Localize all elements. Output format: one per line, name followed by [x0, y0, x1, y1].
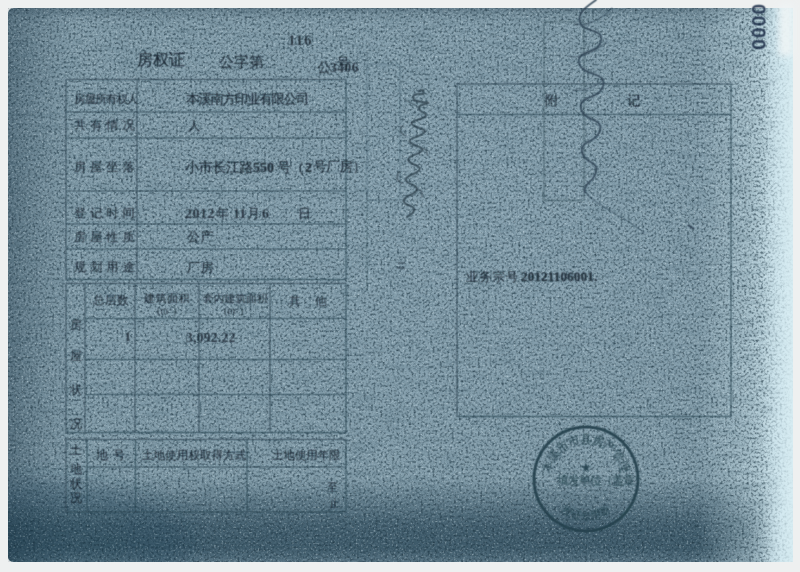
svg-text:11: 11 [233, 207, 246, 222]
svg-text:6: 6 [262, 207, 269, 222]
svg-text:0000: 0000 [747, 4, 768, 51]
svg-text:116: 116 [288, 33, 313, 49]
svg-text:): ) [173, 306, 176, 317]
svg-text:20121106001.: 20121106001. [521, 269, 597, 284]
svg-text:2: 2 [305, 161, 312, 176]
svg-text:550: 550 [253, 161, 274, 176]
svg-text:(m: (m [224, 306, 235, 317]
svg-text:2012: 2012 [185, 207, 215, 222]
svg-text:1: 1 [125, 329, 132, 344]
svg-text:3,092.22: 3,092.22 [186, 330, 236, 345]
svg-text:): ) [240, 306, 243, 317]
svg-text:(m: (m [157, 306, 168, 317]
